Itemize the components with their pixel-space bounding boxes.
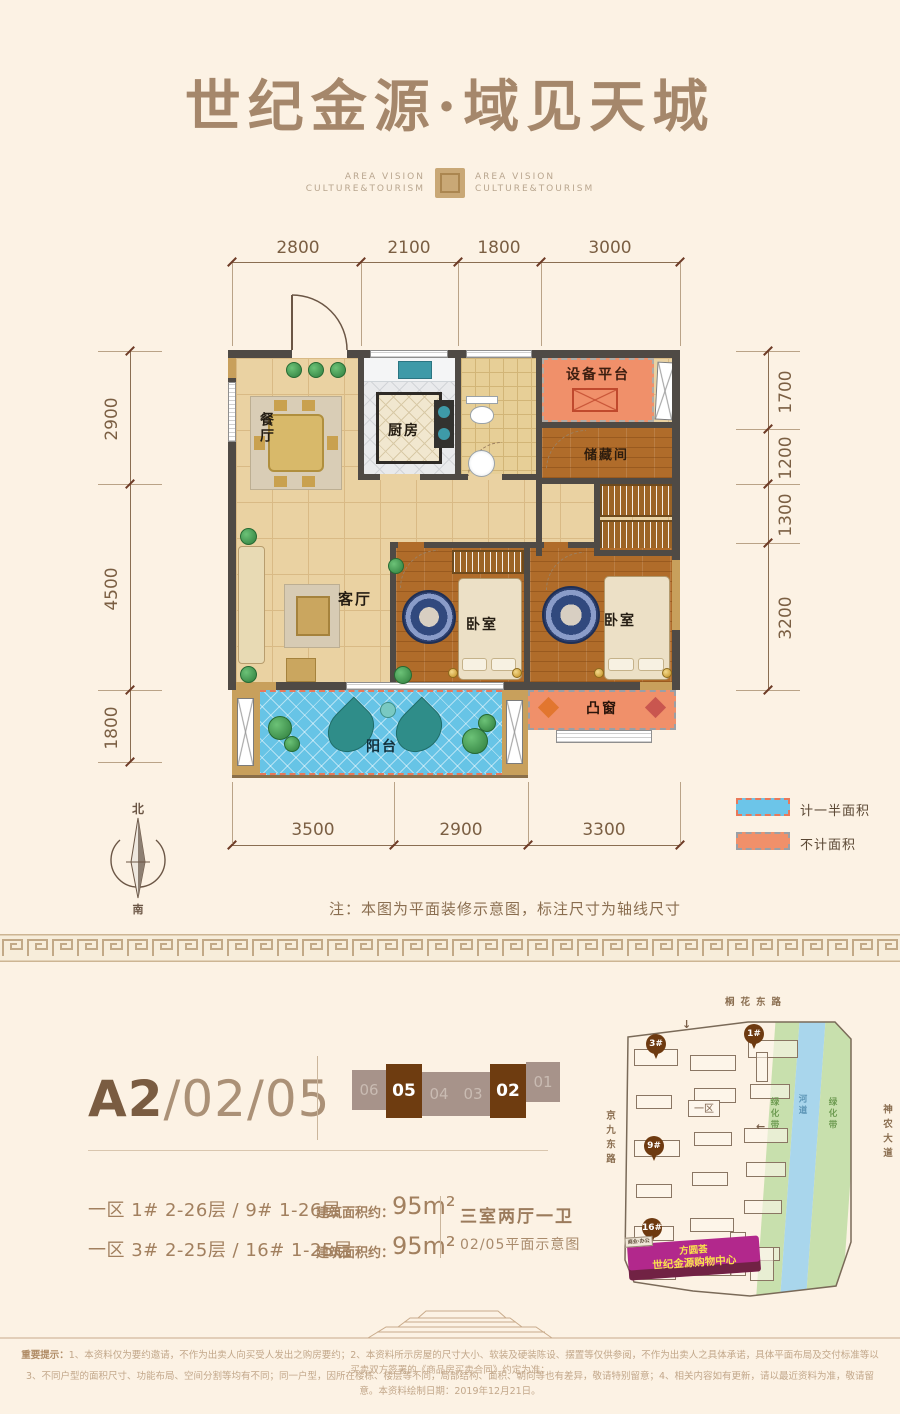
floorplan: 2800 2100 1800 3000 2900 4500 1800 1700 … [0, 230, 900, 935]
plant [284, 736, 300, 752]
page-title: 世纪金源·域见天城 [0, 62, 900, 143]
building-strip: 06 05 04 03 02 01 [352, 1060, 564, 1122]
plant [394, 666, 412, 684]
dim-left-1: 2900 [102, 384, 122, 454]
strip-unit-05-active: 05 [386, 1064, 422, 1118]
plant [240, 666, 257, 683]
dim-left-2: 4500 [102, 554, 122, 624]
map-pin-9: 9# [644, 1136, 664, 1156]
floorplan-poster: 世纪金源·域见天城 AREA VISIONCULTURE&TOURISM ARE… [0, 0, 900, 1414]
area-label-1: 建筑面积约： [316, 1202, 394, 1221]
dim-ext [394, 782, 395, 844]
dim-bottom-3: 3300 [572, 820, 636, 840]
side-table [286, 658, 316, 682]
building [694, 1132, 732, 1146]
house-type-note: 02/05平面示意图 [460, 1234, 580, 1254]
svg-text:北: 北 [132, 801, 144, 816]
entrance-arrow-icon: ↓ [682, 1018, 691, 1031]
divider [440, 1196, 441, 1258]
brand-logo-icon [435, 168, 465, 198]
window-kitchen [370, 350, 448, 358]
area-value-2: 95m² [392, 1232, 456, 1260]
door-arc [546, 552, 584, 590]
dim-right-4: 3200 [776, 583, 796, 653]
label-kitchen: 厨房 [388, 420, 420, 440]
road-left: 京九东路 [602, 1110, 616, 1168]
dim-right-3: 1300 [776, 480, 796, 550]
dim-ext [528, 782, 529, 844]
plan-note: 注：本图为平面装修示意图，标注尺寸为轴线尺寸 [130, 898, 880, 919]
dim-left-3: 1800 [102, 693, 122, 763]
lamp [512, 668, 522, 678]
road-top: 桐花东路 [686, 994, 826, 1008]
closet [600, 484, 676, 517]
bedroom1-rug [402, 590, 456, 644]
dim-ext [361, 263, 362, 346]
building [636, 1184, 672, 1198]
building [690, 1055, 736, 1071]
plant [286, 362, 302, 378]
dim-bottom-1: 3500 [281, 820, 345, 840]
brand-text-right: AREA VISIONCULTURE&TOURISM [475, 171, 594, 195]
toilet-tank [466, 396, 498, 404]
sofa [238, 546, 265, 664]
river-label: 河道 [796, 1094, 808, 1117]
building [690, 1218, 734, 1232]
balcony-door [346, 682, 504, 690]
plant [240, 528, 257, 545]
label-equipment: 设备平台 [552, 364, 644, 384]
dim-ext [458, 263, 459, 346]
dim-ext [541, 263, 542, 346]
building [746, 1162, 786, 1177]
plant [330, 362, 346, 378]
legend-label-no-area: 不计面积 [800, 834, 856, 853]
balcony-shaft-right [506, 700, 523, 764]
area-value-1: 95m² [392, 1192, 456, 1220]
door-arc [546, 430, 586, 470]
mall-tag: 商业·办公 [624, 1236, 653, 1248]
plant [388, 558, 404, 574]
dim-ext [680, 263, 681, 346]
unit-code-bold: A2 [88, 1070, 164, 1128]
site-map: 一区 绿化带 河道 绿化带 桐花东路 京九东路 神农大道 ↓ ← 3# 1# 9… [598, 992, 893, 1322]
green-belt-label: 绿化带 [768, 1097, 780, 1132]
brand-logos: AREA VISIONCULTURE&TOURISM AREA VISIONCU… [0, 168, 900, 198]
unit-code: A2/02/05 [88, 1070, 330, 1128]
divider [88, 1150, 548, 1151]
greek-key-border [0, 934, 900, 962]
strip-unit-04: 04 [422, 1072, 456, 1116]
dim-ext [680, 782, 681, 844]
door-arc [400, 550, 438, 588]
building [756, 1052, 768, 1082]
dim-top-3: 1800 [467, 238, 531, 258]
dim-top-2: 2100 [377, 238, 441, 258]
footer-skyline [0, 1300, 900, 1340]
coffee-table [296, 596, 330, 636]
lamp [662, 668, 672, 678]
bedroom2-rug [542, 586, 600, 644]
dim-top-1: 2800 [266, 238, 330, 258]
map-pin-3: 3# [646, 1034, 666, 1054]
lamp [448, 668, 458, 678]
dim-ext [232, 263, 233, 346]
building [744, 1200, 782, 1214]
plant [478, 714, 496, 732]
building [744, 1128, 788, 1143]
label-balcony: 阳台 [366, 736, 398, 756]
plant [308, 362, 324, 378]
bath-sink [468, 450, 495, 477]
label-living: 客厅 [338, 588, 372, 609]
dim-right-1: 1700 [776, 357, 796, 427]
bay-window-sill [556, 730, 652, 743]
road-right: 神农大道 [879, 1104, 893, 1162]
label-bedroom1: 卧室 [466, 614, 498, 634]
area-label-2: 建筑面积约： [316, 1242, 394, 1261]
zone-box: 一区 [688, 1100, 720, 1117]
legend-swatch-half-area [736, 798, 790, 816]
balcony-shaft-left [237, 698, 254, 766]
label-dining: 餐厅 [256, 412, 276, 444]
legend-label-half-area: 计一半面积 [800, 800, 870, 819]
dim-ext [232, 782, 233, 844]
equipment-box-icon [572, 388, 618, 412]
kitchen-sink [398, 361, 432, 379]
closet [600, 520, 676, 550]
window-bath [466, 350, 532, 358]
building [692, 1172, 728, 1186]
brand-text-left: AREA VISIONCULTURE&TOURISM [306, 171, 425, 195]
map-arrow-icon: ← [756, 1120, 765, 1133]
strip-unit-03: 03 [456, 1072, 490, 1116]
unit-code-rest: /02/05 [164, 1070, 331, 1128]
floors-row-1: 一区 1# 2-26层 / 9# 1-26层 [88, 1196, 340, 1222]
building [636, 1095, 672, 1109]
strip-unit-02-active: 02 [490, 1064, 526, 1118]
wardrobe [452, 550, 524, 574]
house-type: 三室两厅一卫 [460, 1202, 574, 1227]
green-belt-label-2: 绿化带 [826, 1097, 838, 1132]
floors-row-2: 一区 3# 2-25层 / 16# 1-25层 [88, 1236, 352, 1262]
plant [462, 728, 488, 754]
disclaimer-line-2: 3、不同户型的面积尺寸、功能布局、空间分割等均有不同；同一户型，因所在楼栋、楼层… [20, 1369, 880, 1399]
label-storage: 储藏间 [584, 444, 629, 463]
dim-top-4: 3000 [578, 238, 642, 258]
toilet [470, 406, 494, 424]
dining-table [268, 414, 324, 472]
legend-swatch-no-area [736, 832, 790, 850]
strip-unit-06: 06 [352, 1070, 386, 1110]
label-bedroom2: 卧室 [604, 610, 636, 630]
entry-door-icon [290, 294, 350, 352]
window-dining [228, 382, 236, 442]
label-bay-window: 凸窗 [574, 698, 630, 718]
divider [317, 1056, 318, 1140]
dim-bottom-2: 2900 [429, 820, 493, 840]
lamp [594, 668, 604, 678]
strip-unit-01: 01 [526, 1062, 560, 1102]
map-pin-1: 1# [744, 1024, 764, 1044]
